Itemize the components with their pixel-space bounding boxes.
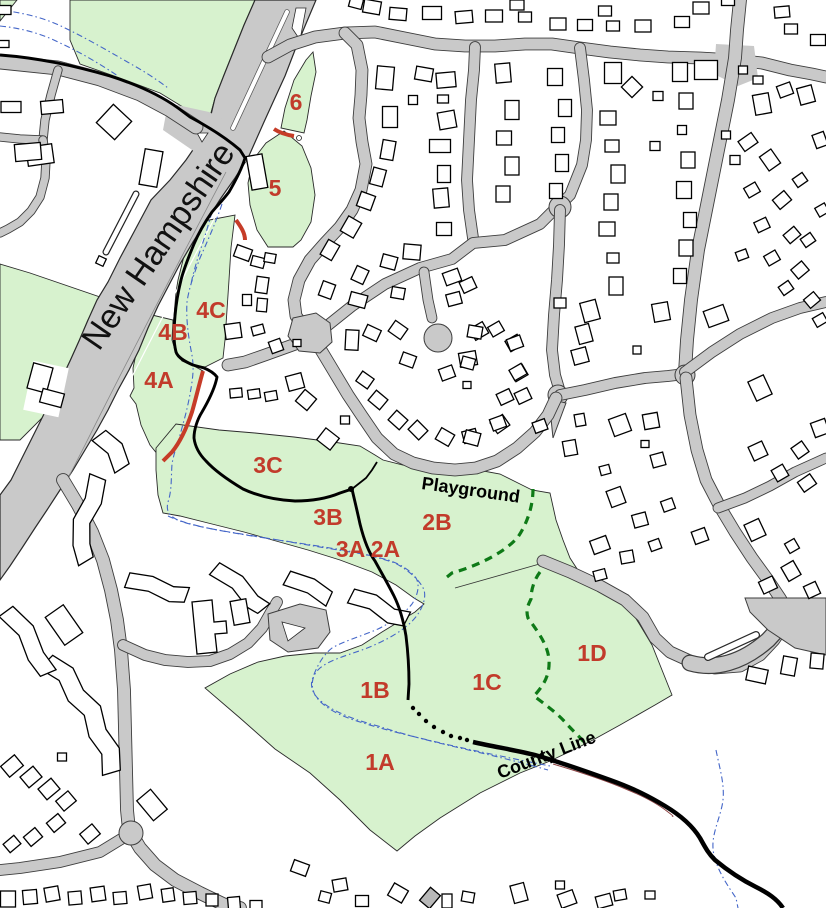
svg-text:3A 2A: 3A 2A: [336, 536, 400, 562]
svg-text:5: 5: [269, 175, 282, 201]
svg-text:3C: 3C: [253, 452, 282, 478]
svg-text:1B: 1B: [360, 677, 389, 703]
svg-text:3B: 3B: [313, 504, 342, 530]
svg-text:4A: 4A: [144, 367, 173, 393]
svg-text:1D: 1D: [577, 640, 606, 666]
svg-text:4B: 4B: [158, 319, 187, 345]
svg-text:4C: 4C: [196, 297, 225, 323]
svg-text:2B: 2B: [422, 509, 451, 535]
svg-text:1A: 1A: [365, 749, 394, 775]
svg-text:6: 6: [290, 89, 303, 115]
svg-text:1C: 1C: [472, 669, 501, 695]
